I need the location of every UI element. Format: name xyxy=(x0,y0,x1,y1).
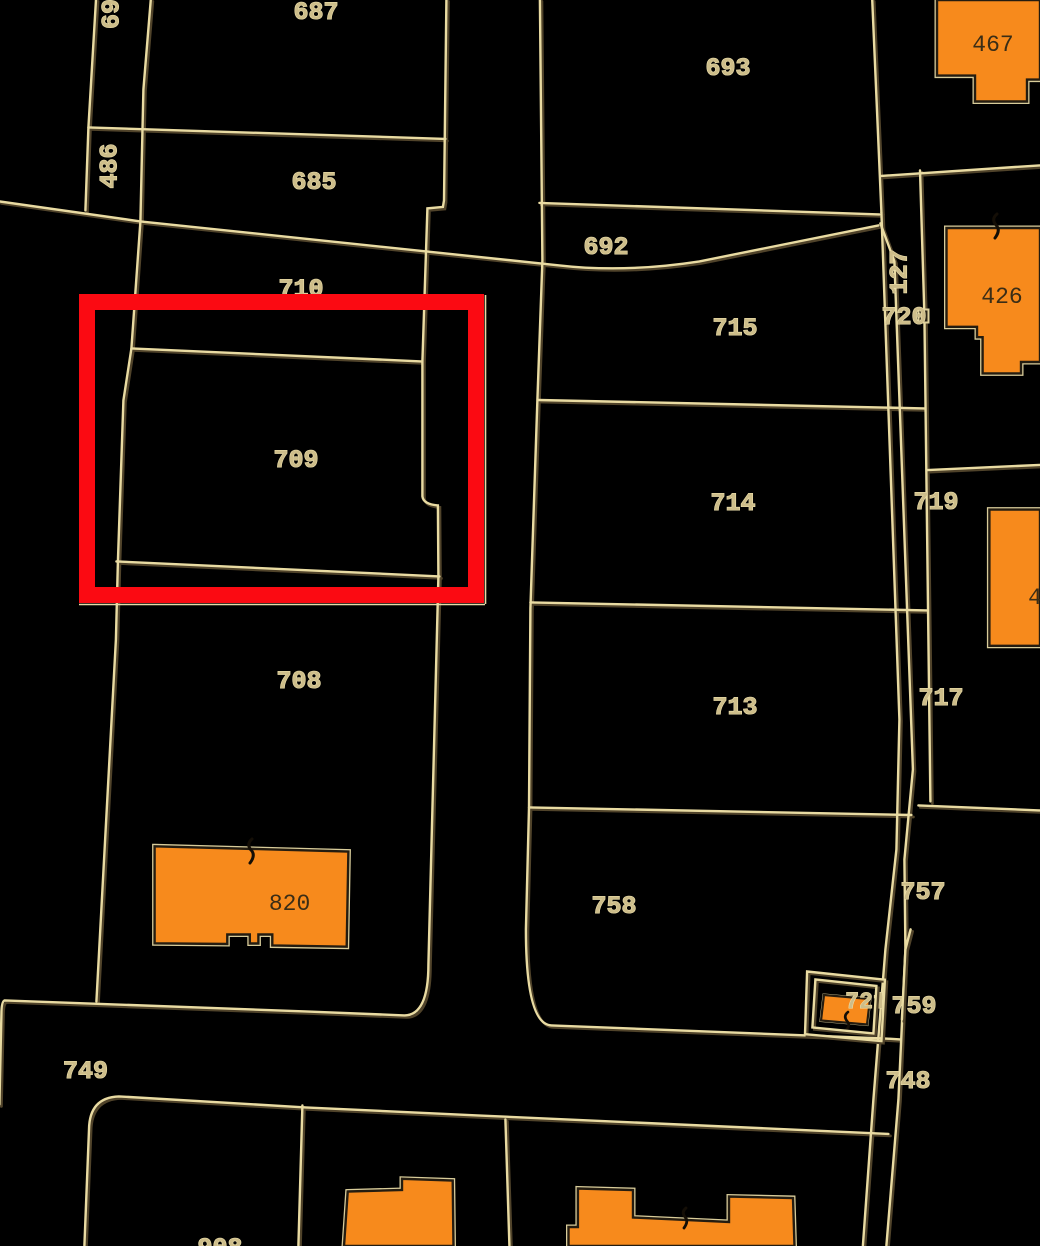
svg-text:713: 713 xyxy=(712,693,757,722)
svg-text:759: 759 xyxy=(891,992,936,1021)
svg-text:717: 717 xyxy=(918,684,963,713)
svg-text:127: 127 xyxy=(886,249,915,294)
svg-text:908: 908 xyxy=(197,1234,242,1246)
svg-text:685: 685 xyxy=(291,168,336,197)
svg-text:715: 715 xyxy=(712,314,757,343)
svg-text:687: 687 xyxy=(293,0,338,27)
svg-text:693: 693 xyxy=(705,54,750,83)
svg-text:720: 720 xyxy=(881,303,926,332)
svg-text:820: 820 xyxy=(269,891,310,917)
svg-text:692: 692 xyxy=(583,233,628,262)
svg-text:757: 757 xyxy=(900,878,945,907)
svg-text:4: 4 xyxy=(1028,585,1040,611)
svg-text:709: 709 xyxy=(273,446,318,475)
svg-text:467: 467 xyxy=(972,32,1013,58)
svg-text:721: 721 xyxy=(845,989,886,1015)
svg-text:748: 748 xyxy=(885,1067,930,1096)
svg-text:708: 708 xyxy=(276,667,321,696)
svg-text:69: 69 xyxy=(98,0,127,29)
svg-text:714: 714 xyxy=(710,489,755,518)
svg-text:486: 486 xyxy=(96,143,125,188)
svg-text:749: 749 xyxy=(63,1057,108,1086)
svg-text:426: 426 xyxy=(981,284,1022,310)
svg-text:719: 719 xyxy=(913,488,958,517)
svg-text:758: 758 xyxy=(591,892,636,921)
